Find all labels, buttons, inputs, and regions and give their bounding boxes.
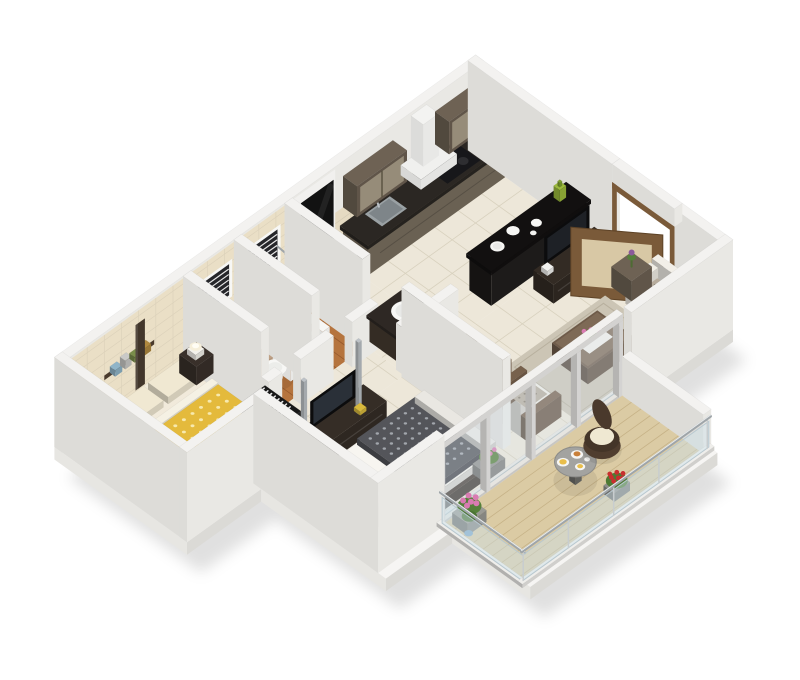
isometric-scene — [0, 0, 800, 680]
floor-plan-render — [0, 0, 800, 680]
